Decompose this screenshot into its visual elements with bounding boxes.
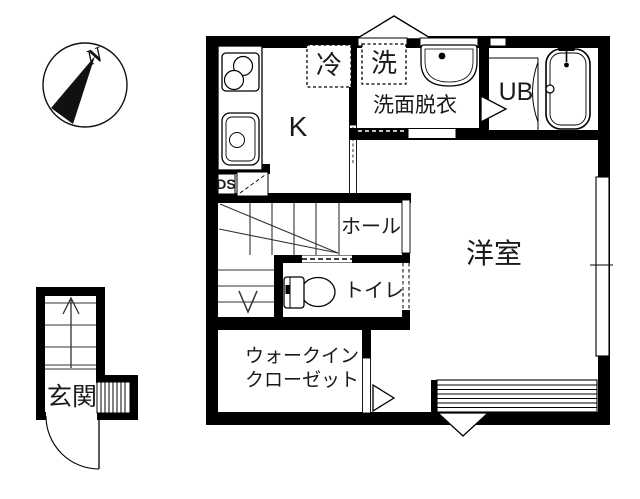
bathtub-icon xyxy=(546,43,590,129)
wic-label-line2: クローゼット xyxy=(245,371,341,391)
floorplan-canvas: N xyxy=(0,0,640,499)
kitchen-counter xyxy=(218,46,262,170)
compass: N xyxy=(43,41,127,127)
sink-icon xyxy=(222,113,259,165)
window-right xyxy=(596,177,609,356)
entrance-label: 玄関 xyxy=(45,384,99,410)
entrance-step-hatch xyxy=(97,382,130,413)
toilet-label: トイレ xyxy=(344,281,388,302)
washroom-sliding-door xyxy=(408,129,456,139)
entrance-up-arrow xyxy=(63,298,79,368)
wic-label-line1: ウォークイン xyxy=(245,347,341,367)
wic-door xyxy=(363,358,371,413)
entrance-block xyxy=(36,287,138,469)
shutter-strip xyxy=(431,380,597,413)
kitchen-label: K xyxy=(283,112,313,141)
outer-wall-left xyxy=(206,36,218,425)
washer-label: 洗 xyxy=(362,50,406,77)
toilet-icon xyxy=(284,277,335,308)
hall-sliding-door xyxy=(402,200,410,253)
bay-window-triangle-top xyxy=(356,16,432,39)
hall-label: ホール xyxy=(340,217,402,238)
refrigerator-label: 冷 xyxy=(307,52,351,79)
stove-icon xyxy=(222,53,259,91)
western-room-label: 洋室 xyxy=(462,239,526,268)
entrance-door-arc xyxy=(46,416,99,469)
washbasin-icon xyxy=(421,45,477,86)
window-top-3 xyxy=(490,38,506,46)
outer-wall-bottom xyxy=(206,412,610,425)
duct-space-label: DS xyxy=(214,177,238,192)
unit-bath-label: UB xyxy=(495,79,537,105)
washroom-label: 洗面脱衣 xyxy=(355,95,475,117)
wic-door-triangle xyxy=(373,385,394,411)
